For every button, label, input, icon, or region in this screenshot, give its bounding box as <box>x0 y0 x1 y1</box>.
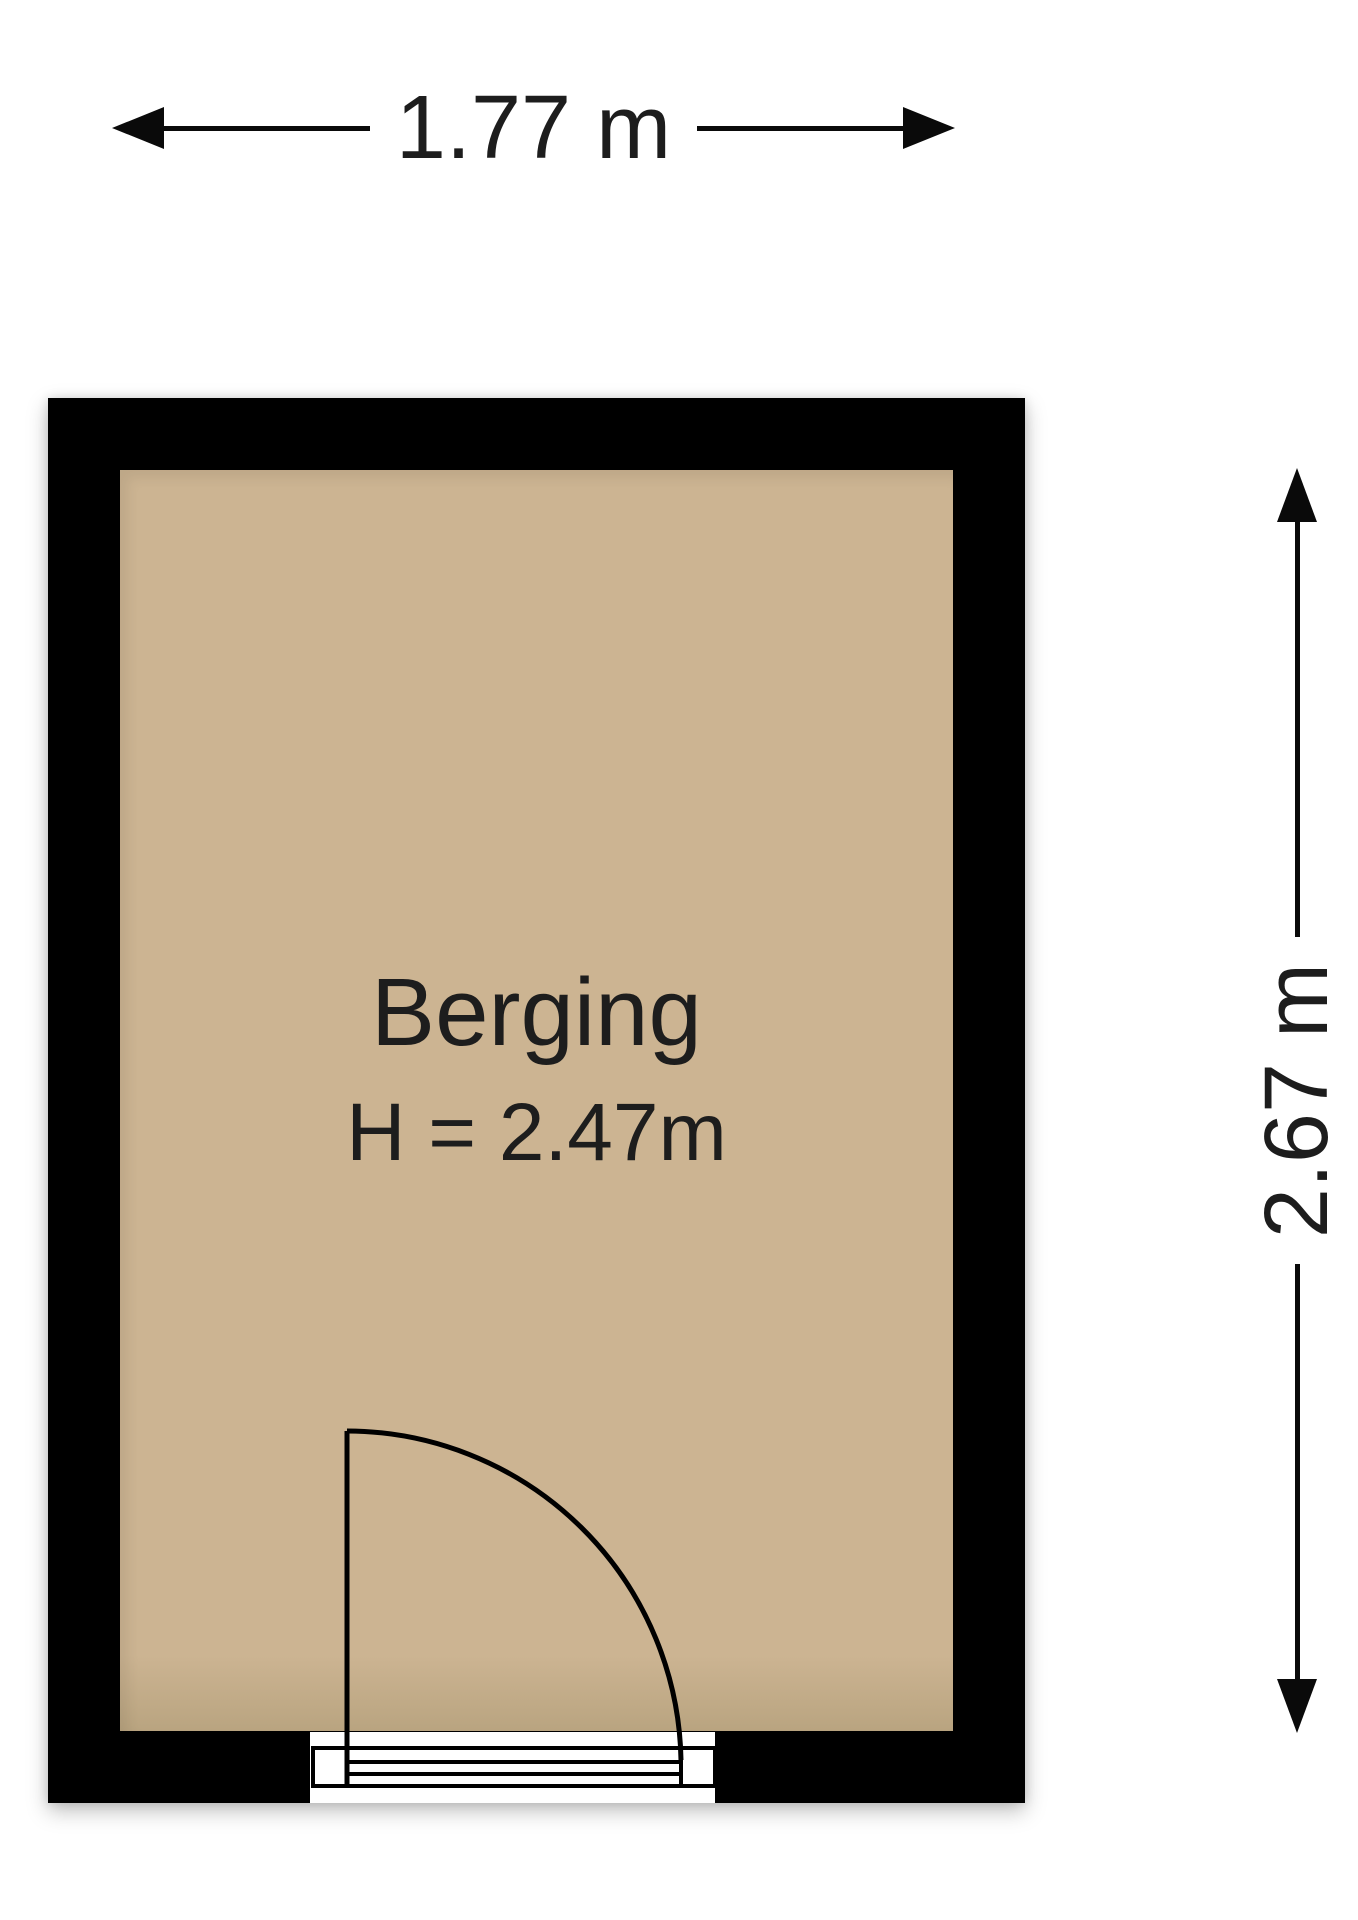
width-dimension-line-left <box>164 126 370 131</box>
floorplan-canvas: 1.77 m Berging H = 2.47m 2.67 m <box>0 0 1358 1920</box>
height-dimension-label: 2.67 m <box>1252 937 1342 1264</box>
height-dimension-line-bottom <box>1295 1264 1300 1679</box>
width-dimension-label: 1.77 m <box>370 83 697 173</box>
arrow-right-icon <box>903 107 955 149</box>
width-dimension: 1.77 m <box>112 82 955 174</box>
room-ceiling-height-label: H = 2.47m <box>48 1090 1025 1176</box>
room-walls: Berging H = 2.47m <box>48 398 1025 1803</box>
arrow-up-icon <box>1277 468 1317 522</box>
room-name-label: Berging <box>48 963 1025 1064</box>
width-dimension-line-right <box>697 126 903 131</box>
arrow-down-icon <box>1277 1679 1317 1733</box>
height-dimension-line-top <box>1295 522 1300 937</box>
arrow-left-icon <box>112 107 164 149</box>
height-dimension: 2.67 m <box>1237 468 1357 1733</box>
room-label: Berging H = 2.47m <box>48 963 1025 1176</box>
